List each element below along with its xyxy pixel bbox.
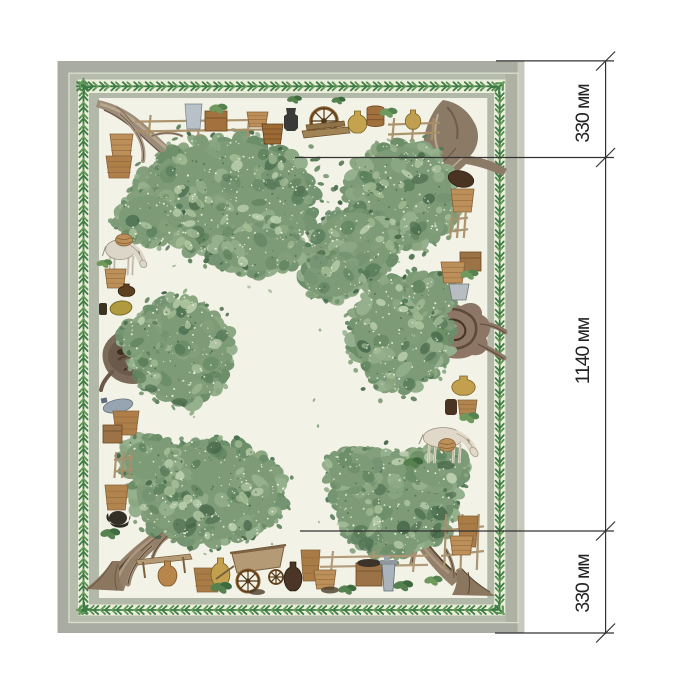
svg-text:1140 мм: 1140 мм <box>572 317 594 384</box>
svg-text:330 мм: 330 мм <box>572 84 594 143</box>
svg-text:330 мм: 330 мм <box>572 554 594 613</box>
